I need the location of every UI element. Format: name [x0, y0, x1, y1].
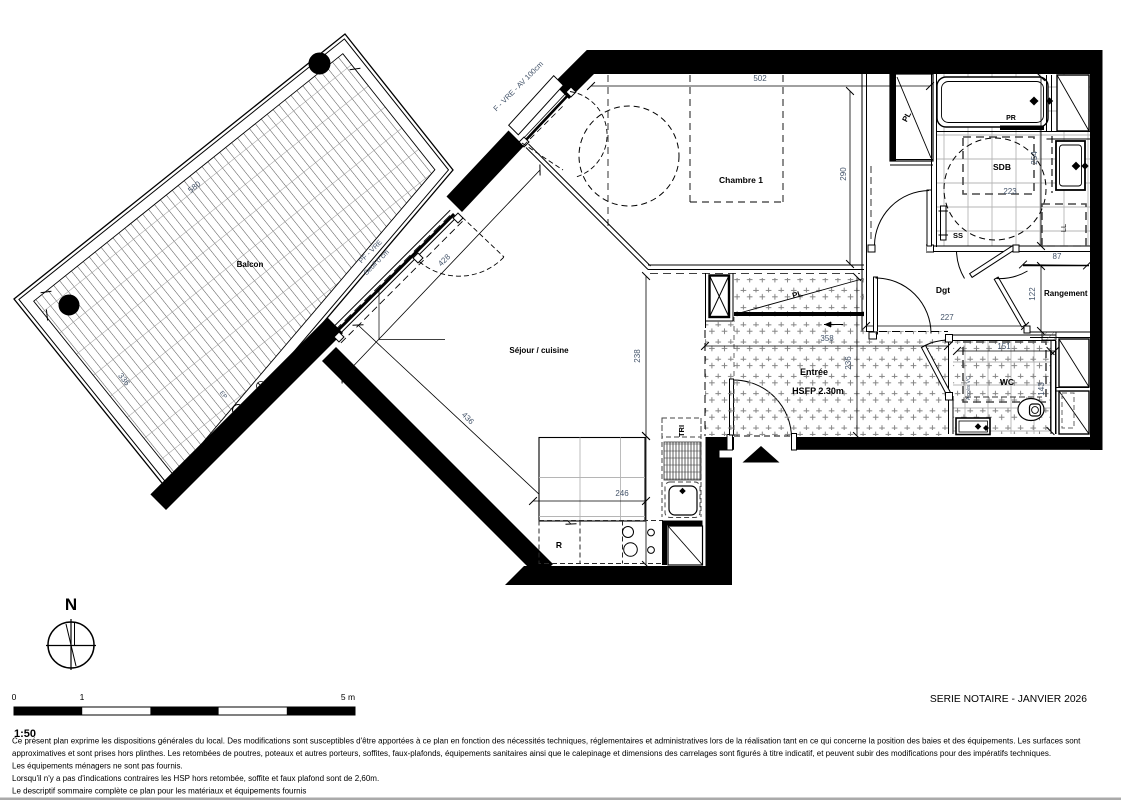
svg-text:Entrée: Entrée: [800, 367, 828, 377]
svg-text:502: 502: [753, 74, 767, 83]
svg-text:246: 246: [615, 489, 629, 498]
svg-text:SDB: SDB: [993, 162, 1011, 172]
svg-text:0: 0: [12, 692, 17, 702]
svg-text:LL: LL: [1059, 224, 1068, 232]
svg-text:Chambre 1: Chambre 1: [719, 175, 763, 185]
svg-text:Accès VC: Accès VC: [966, 376, 972, 400]
svg-text:236: 236: [844, 356, 853, 370]
svg-text:254: 254: [1030, 151, 1039, 165]
svg-text:122: 122: [1028, 287, 1037, 301]
svg-text:223: 223: [1003, 187, 1017, 196]
svg-text:approximatives et sont prises: approximatives et sont prises hors plint…: [12, 749, 1051, 758]
svg-text:87: 87: [1053, 252, 1062, 261]
svg-text:R: R: [556, 540, 562, 550]
svg-text:Rangement: Rangement: [1044, 289, 1088, 298]
svg-text:1: 1: [80, 692, 85, 702]
svg-text:WC: WC: [1000, 377, 1014, 387]
svg-text:290: 290: [839, 167, 848, 181]
svg-text:Ce présent plan exprime les di: Ce présent plan exprime les dispositions…: [12, 737, 1081, 746]
svg-text:Balcon: Balcon: [237, 260, 264, 269]
svg-text:5 m: 5 m: [341, 692, 355, 702]
svg-text:358: 358: [820, 334, 834, 343]
svg-text:Le descriptif sommaire complèt: Le descriptif sommaire complète ce plan …: [12, 787, 306, 796]
svg-text:151: 151: [997, 342, 1011, 351]
svg-text:HSFP 2.30m: HSFP 2.30m: [792, 386, 844, 396]
svg-text:238: 238: [633, 349, 642, 363]
svg-text:Dgt: Dgt: [936, 285, 950, 295]
svg-text:N: N: [65, 595, 77, 614]
svg-text:143: 143: [1037, 382, 1046, 396]
svg-text:TRI: TRI: [677, 425, 686, 437]
svg-text:Séjour / cuisine: Séjour / cuisine: [509, 346, 569, 355]
svg-text:227: 227: [940, 313, 954, 322]
svg-text:Lorsqu'il n'y a pas d'indicati: Lorsqu'il n'y a pas d'indications contra…: [12, 774, 379, 783]
svg-text:SS: SS: [953, 231, 963, 240]
svg-text:PR: PR: [1006, 115, 1016, 122]
svg-text:Les équipements ménagers ne so: Les équipements ménagers ne sont pas fou…: [12, 762, 183, 771]
svg-text:SERIE NOTAIRE - JANVIER 2026: SERIE NOTAIRE - JANVIER 2026: [930, 694, 1087, 705]
